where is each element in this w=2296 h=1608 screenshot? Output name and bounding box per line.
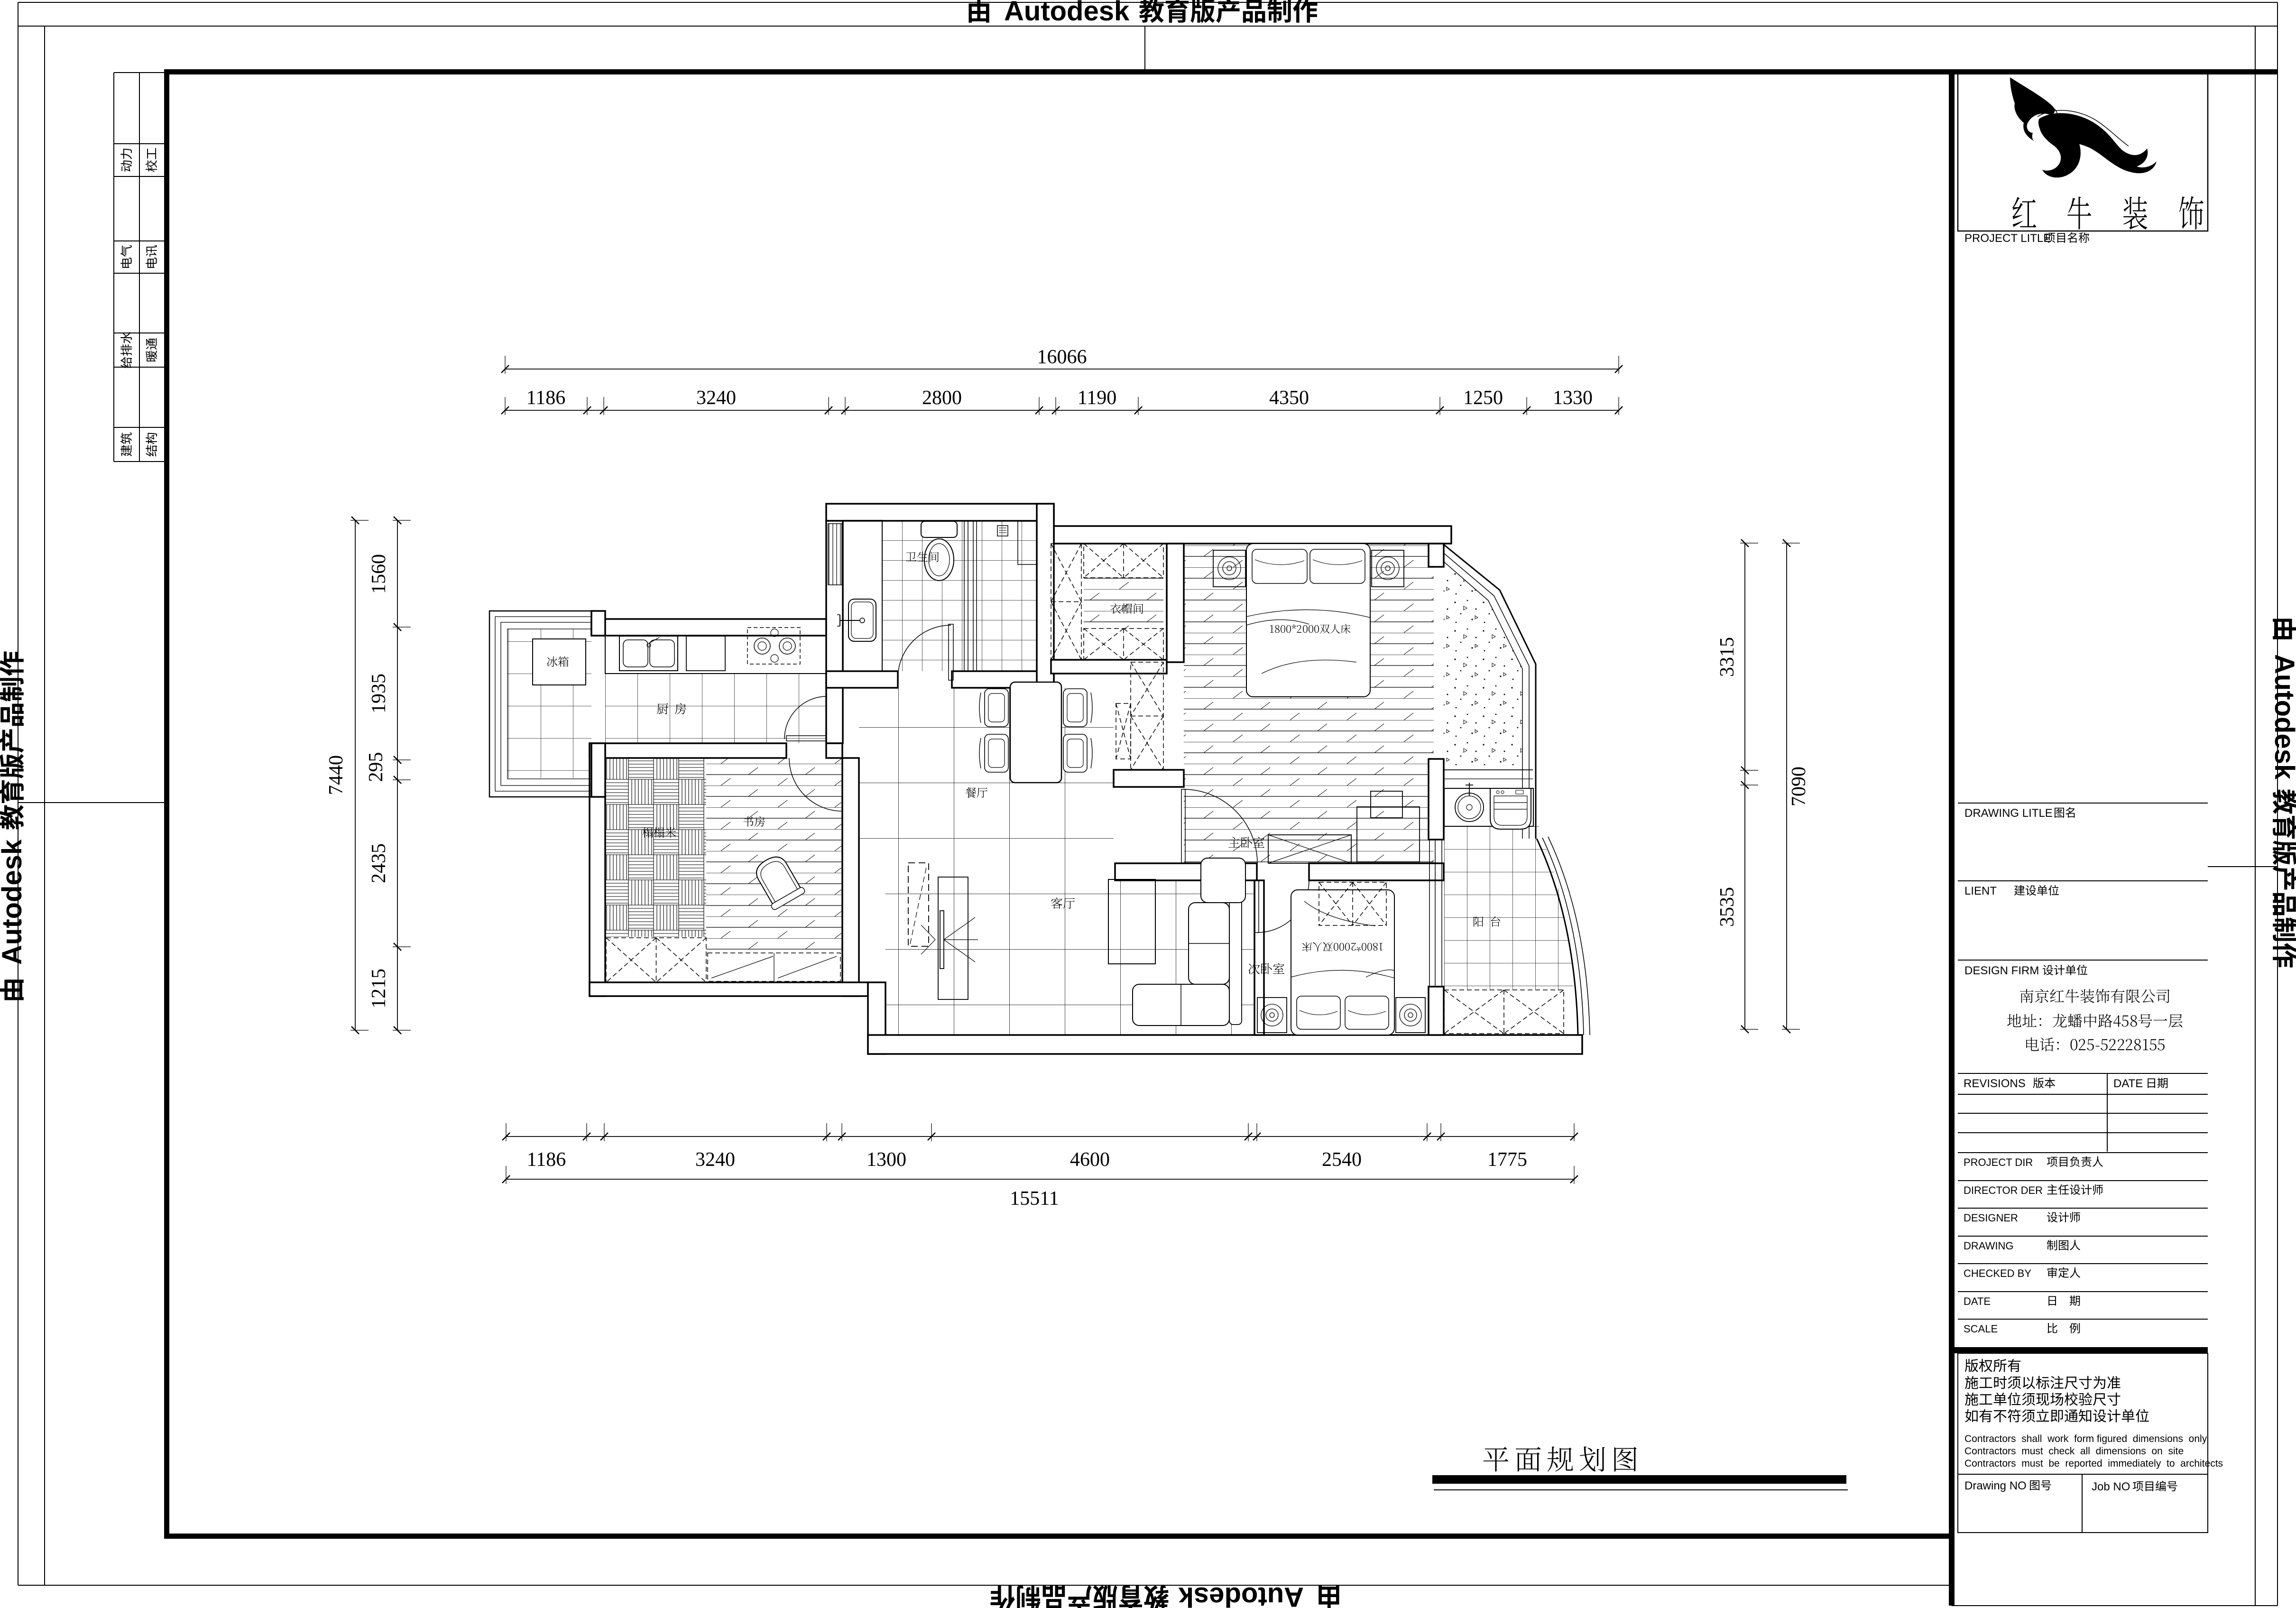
- svg-text:LIENT: LIENT: [1964, 885, 1997, 897]
- svg-text:PROJECT DIR: PROJECT DIR: [1964, 1156, 2033, 1168]
- svg-text:7440: 7440: [325, 755, 347, 795]
- svg-text:1186: 1186: [527, 1149, 566, 1171]
- svg-text:DIRECTOR DER: DIRECTOR DER: [1964, 1184, 2043, 1196]
- svg-text:4600: 4600: [1070, 1149, 1110, 1171]
- svg-text:1935: 1935: [368, 674, 390, 713]
- svg-text:Autodesk: Autodesk: [2269, 654, 2296, 780]
- svg-text:1330: 1330: [1553, 387, 1593, 409]
- svg-text:16066: 16066: [1037, 346, 1087, 368]
- svg-text:DESIGNER: DESIGNER: [1964, 1212, 2018, 1224]
- svg-text:3240: 3240: [695, 1149, 735, 1171]
- svg-text:DESIGN FIRM: DESIGN FIRM: [1964, 964, 2039, 977]
- svg-text:1560: 1560: [368, 554, 390, 594]
- svg-text:REVISIONS: REVISIONS: [1964, 1077, 2026, 1090]
- svg-text:3535: 3535: [1716, 887, 1738, 927]
- svg-text:Job NO: Job NO: [2092, 1480, 2130, 1493]
- svg-text:Autodesk: Autodesk: [0, 839, 28, 965]
- svg-text:2800: 2800: [922, 387, 962, 409]
- svg-text:1300: 1300: [867, 1149, 906, 1171]
- svg-text:Contractors must check all: Contractors must check all dimensions on…: [1964, 1446, 2184, 1457]
- svg-text:Contractors must be reporte: Contractors must be reported immediately…: [1964, 1458, 2223, 1469]
- svg-text:3240: 3240: [696, 387, 736, 409]
- svg-text:3315: 3315: [1716, 637, 1738, 677]
- svg-text:295: 295: [365, 752, 387, 782]
- svg-text:DATE: DATE: [1964, 1295, 1991, 1307]
- svg-text:7090: 7090: [1788, 767, 1810, 806]
- svg-text:4350: 4350: [1269, 387, 1309, 409]
- svg-text:1186: 1186: [526, 387, 565, 409]
- svg-text:SCALE: SCALE: [1964, 1323, 1998, 1335]
- svg-text:Autodesk: Autodesk: [1004, 0, 1130, 27]
- svg-text:1775: 1775: [1487, 1149, 1527, 1171]
- svg-text:PROJECT LITLE: PROJECT LITLE: [1964, 232, 2051, 245]
- svg-text:CHECKED BY: CHECKED BY: [1964, 1267, 2031, 1279]
- svg-text:15511: 15511: [1010, 1188, 1059, 1210]
- svg-text:1215: 1215: [368, 969, 390, 1008]
- svg-text:Contractors shall work form: Contractors shall work form figured dime…: [1964, 1433, 2207, 1444]
- svg-text:2540: 2540: [1322, 1149, 1362, 1171]
- svg-text:DATE: DATE: [2113, 1077, 2143, 1090]
- svg-text:2435: 2435: [368, 843, 390, 883]
- svg-text:1250: 1250: [1463, 387, 1503, 409]
- svg-text:DRAWING: DRAWING: [1964, 1240, 2014, 1252]
- svg-text:DRAWING LITLE: DRAWING LITLE: [1964, 807, 2053, 820]
- svg-text:Drawing NO: Drawing NO: [1964, 1479, 2027, 1492]
- svg-text:1190: 1190: [1078, 387, 1116, 409]
